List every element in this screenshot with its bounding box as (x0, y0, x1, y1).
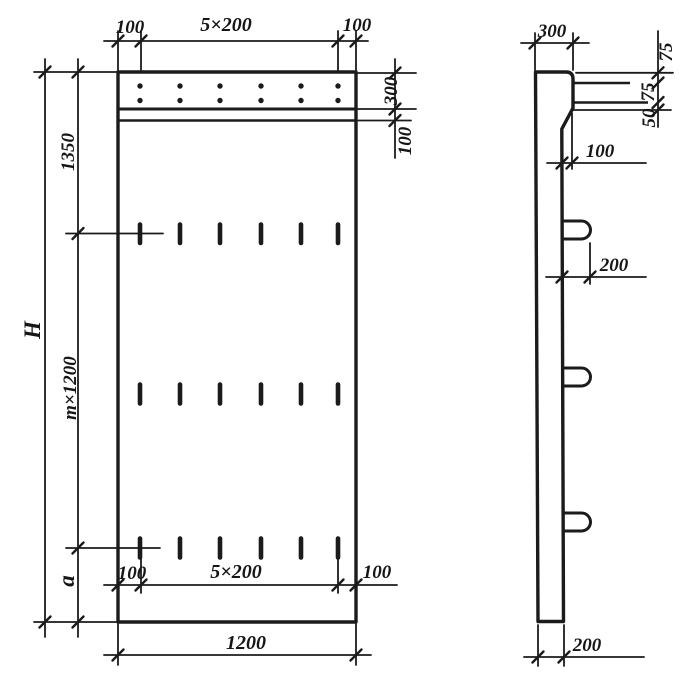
dim-label-upper-zone: 1350 (58, 133, 79, 172)
dim-label-top-left-margin: 100 (116, 17, 145, 38)
dim-label-side-top-width: 300 (537, 21, 567, 42)
dim-side-top-width: 300 (521, 21, 589, 70)
dim-label-edge-top: 75 (656, 42, 677, 62)
panel-technical-drawing: 100 5×200 100 300 100 H 135 (0, 0, 700, 700)
side-view: 300 75 75 50 100 200 (521, 21, 677, 666)
dim-label-overall-height: H (20, 320, 45, 340)
slot-mark-row-lower (140, 539, 338, 558)
dim-label-step-offset: 100 (586, 141, 615, 162)
dim-bottom-chain: 100 5×200 100 (104, 559, 397, 593)
dim-label-bottom-spacing: 5×200 (210, 561, 261, 583)
dim-band-chain: 300 100 (358, 59, 416, 158)
slot-mark-row-middle (140, 385, 338, 404)
side-profile-outline (536, 72, 574, 622)
front-panel-outline (118, 72, 356, 622)
top-band-lines (120, 109, 355, 121)
dim-label-bottom-right-margin: 100 (363, 562, 392, 583)
drawing-sheet: 100 5×200 100 300 100 H 135 (0, 0, 700, 700)
dim-label-band-height: 300 (381, 76, 402, 106)
dim-top-chain: 100 5×200 100 (104, 14, 372, 70)
dim-label-lower-zone: a (54, 575, 79, 587)
anchor-dot-grid (137, 83, 340, 103)
dim-label-loop-projection: 200 (599, 255, 629, 276)
dim-label-edge-bottom: 50 (639, 108, 660, 128)
dim-label-overall-width: 1200 (226, 632, 266, 654)
dim-side-bottom-thickness: 200 (524, 625, 644, 666)
dim-side-edge-chain: 75 75 50 (572, 31, 677, 128)
dim-label-top-right-margin: 100 (343, 15, 372, 36)
dim-label-bottom-thickness: 200 (572, 635, 602, 656)
slot-mark-row-upper (140, 225, 338, 244)
dim-label-band-lower: 100 (395, 126, 416, 155)
dim-label-edge-middle: 75 (638, 82, 659, 102)
dim-label-top-spacing: 5×200 (200, 14, 251, 36)
tongue-lines (573, 83, 648, 103)
front-view: 100 5×200 100 300 100 H 135 (20, 14, 416, 665)
dim-label-middle-zone: m×1200 (60, 356, 81, 420)
lifting-loops (562, 221, 591, 531)
dim-label-bottom-left-margin: 100 (118, 563, 147, 584)
dim-overall-width: 1200 (104, 624, 371, 665)
